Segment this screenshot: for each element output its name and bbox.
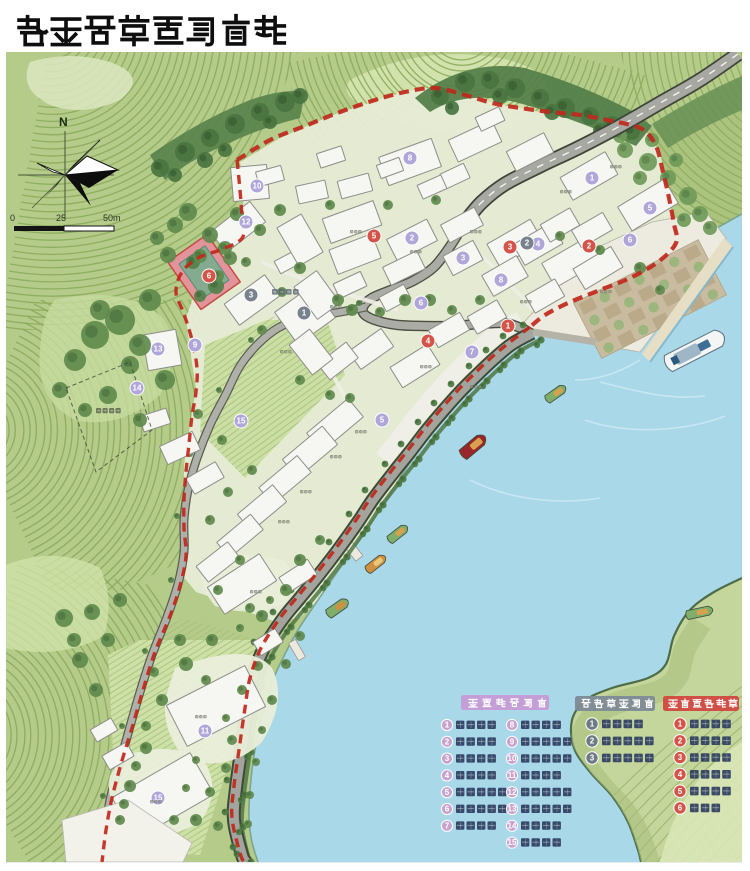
svg-text:15: 15 xyxy=(508,838,517,847)
svg-text:10: 10 xyxy=(253,182,262,191)
svg-text:9: 9 xyxy=(510,737,515,746)
svg-text:8: 8 xyxy=(408,154,413,163)
svg-text:8: 8 xyxy=(510,721,515,730)
svg-text:1: 1 xyxy=(506,322,511,331)
svg-text:8: 8 xyxy=(499,276,504,285)
svg-text:9: 9 xyxy=(193,341,198,350)
svg-text:50m: 50m xyxy=(103,213,121,223)
svg-text:3: 3 xyxy=(461,254,466,263)
svg-text:11: 11 xyxy=(201,727,210,736)
svg-text:2: 2 xyxy=(587,242,592,251)
svg-text:5: 5 xyxy=(648,204,653,213)
svg-text:6: 6 xyxy=(207,272,212,281)
svg-text:4: 4 xyxy=(445,771,450,780)
svg-text:3: 3 xyxy=(445,754,450,763)
svg-text:1: 1 xyxy=(590,174,595,183)
svg-text:1: 1 xyxy=(445,721,450,730)
svg-text:2: 2 xyxy=(678,736,683,745)
svg-text:4: 4 xyxy=(536,240,541,249)
svg-text:14: 14 xyxy=(133,384,142,393)
svg-text:2: 2 xyxy=(410,234,415,243)
svg-text:12: 12 xyxy=(508,788,517,797)
svg-text:6: 6 xyxy=(628,236,633,245)
svg-text:0: 0 xyxy=(10,213,15,223)
svg-text:7: 7 xyxy=(445,821,450,830)
svg-text:10: 10 xyxy=(508,754,517,763)
svg-text:6: 6 xyxy=(419,299,424,308)
svg-text:11: 11 xyxy=(508,771,517,780)
svg-text:5: 5 xyxy=(372,232,377,241)
svg-text:N: N xyxy=(59,115,68,129)
svg-text:4: 4 xyxy=(426,337,431,346)
svg-text:1: 1 xyxy=(590,720,595,729)
svg-text:25: 25 xyxy=(56,213,66,223)
svg-text:15: 15 xyxy=(237,417,246,426)
svg-text:2: 2 xyxy=(445,737,450,746)
svg-text:7: 7 xyxy=(470,348,475,357)
svg-text:3: 3 xyxy=(590,754,595,763)
svg-text:13: 13 xyxy=(154,345,163,354)
svg-text:3: 3 xyxy=(678,753,683,762)
svg-text:12: 12 xyxy=(242,218,251,227)
svg-text:6: 6 xyxy=(678,804,683,813)
svg-text:3: 3 xyxy=(508,243,513,252)
svg-text:5: 5 xyxy=(380,416,385,425)
svg-text:1: 1 xyxy=(678,720,683,729)
svg-text:2: 2 xyxy=(525,239,530,248)
svg-text:14: 14 xyxy=(508,821,517,830)
svg-text:5: 5 xyxy=(445,788,450,797)
svg-text:2: 2 xyxy=(590,737,595,746)
svg-text:1: 1 xyxy=(302,309,307,318)
svg-text:3: 3 xyxy=(249,291,254,300)
svg-text:5: 5 xyxy=(678,787,683,796)
svg-text:4: 4 xyxy=(678,770,683,779)
svg-text:13: 13 xyxy=(508,805,517,814)
svg-text:6: 6 xyxy=(445,805,450,814)
